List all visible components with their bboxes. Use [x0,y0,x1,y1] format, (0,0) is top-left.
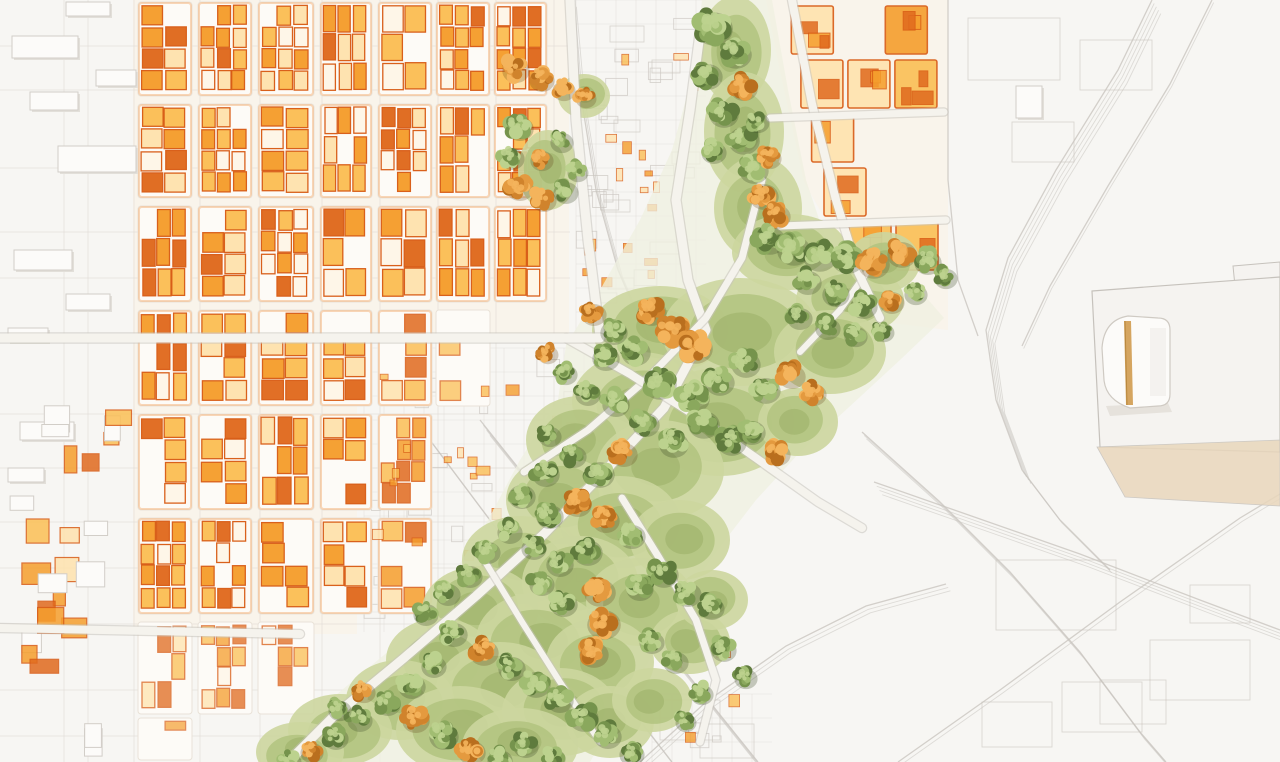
aerial-urban-model-image [0,0,1280,762]
urban-model-viewport [0,0,1280,762]
white-model-building-layer [1092,262,1280,506]
